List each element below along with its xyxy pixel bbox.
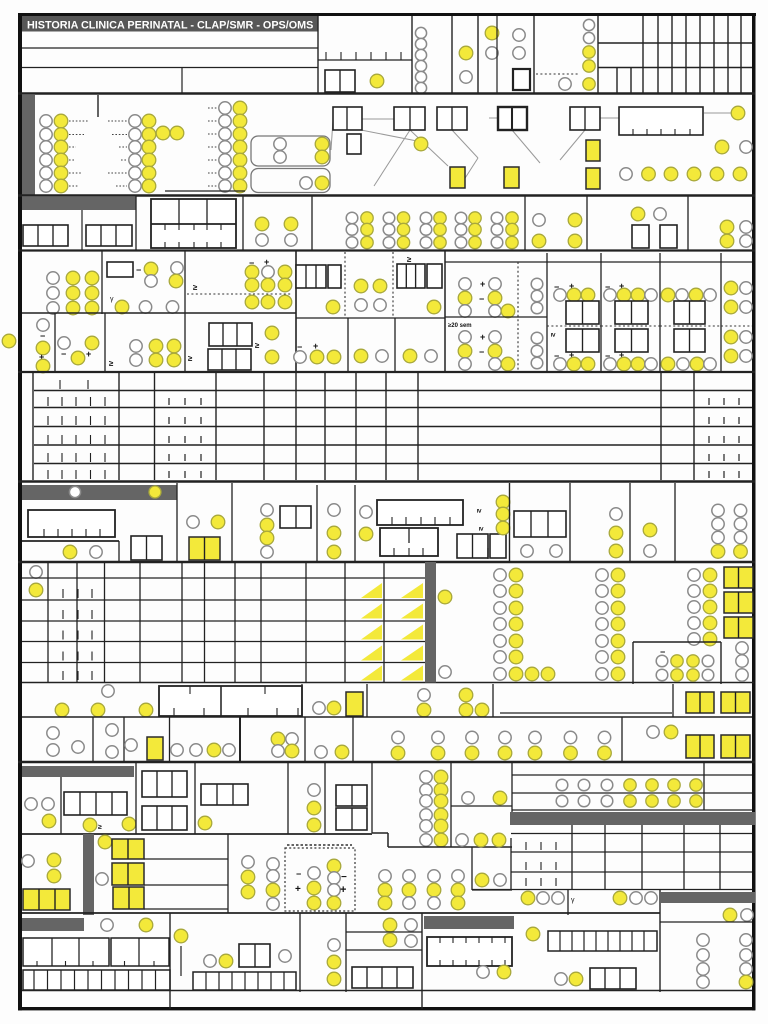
svg-text:≥: ≥: [407, 255, 412, 264]
svg-text:HISTORIA CLINICA PERINATAL -: HISTORIA CLINICA PERINATAL - CLAP/SMR - …: [27, 20, 313, 32]
svg-text:≥: ≥: [255, 341, 260, 350]
svg-text:≥: ≥: [475, 509, 482, 513]
svg-text:+: +: [480, 279, 485, 289]
svg-text:γ: γ: [571, 897, 575, 904]
svg-text:−: −: [136, 265, 141, 275]
svg-text:−: −: [40, 331, 45, 341]
svg-text:−: −: [341, 872, 347, 883]
svg-text:≥: ≥: [98, 824, 102, 831]
svg-text:+: +: [295, 884, 301, 895]
svg-text:−: −: [479, 294, 484, 304]
svg-text:γ: γ: [110, 296, 114, 303]
svg-text:≥: ≥: [477, 527, 484, 531]
svg-text:≥: ≥: [109, 359, 114, 368]
svg-text:≥: ≥: [188, 354, 193, 363]
svg-text:≥: ≥: [193, 283, 198, 292]
svg-text:−: −: [296, 869, 301, 879]
svg-text:≥: ≥: [549, 333, 556, 337]
svg-text:+: +: [340, 884, 346, 896]
svg-text:+: +: [313, 341, 318, 351]
svg-text:≥20 sem: ≥20 sem: [448, 323, 472, 329]
svg-text:+: +: [480, 332, 485, 342]
svg-text:+: +: [86, 349, 91, 359]
svg-text:−: −: [61, 349, 66, 359]
svg-text:−: −: [479, 347, 484, 357]
